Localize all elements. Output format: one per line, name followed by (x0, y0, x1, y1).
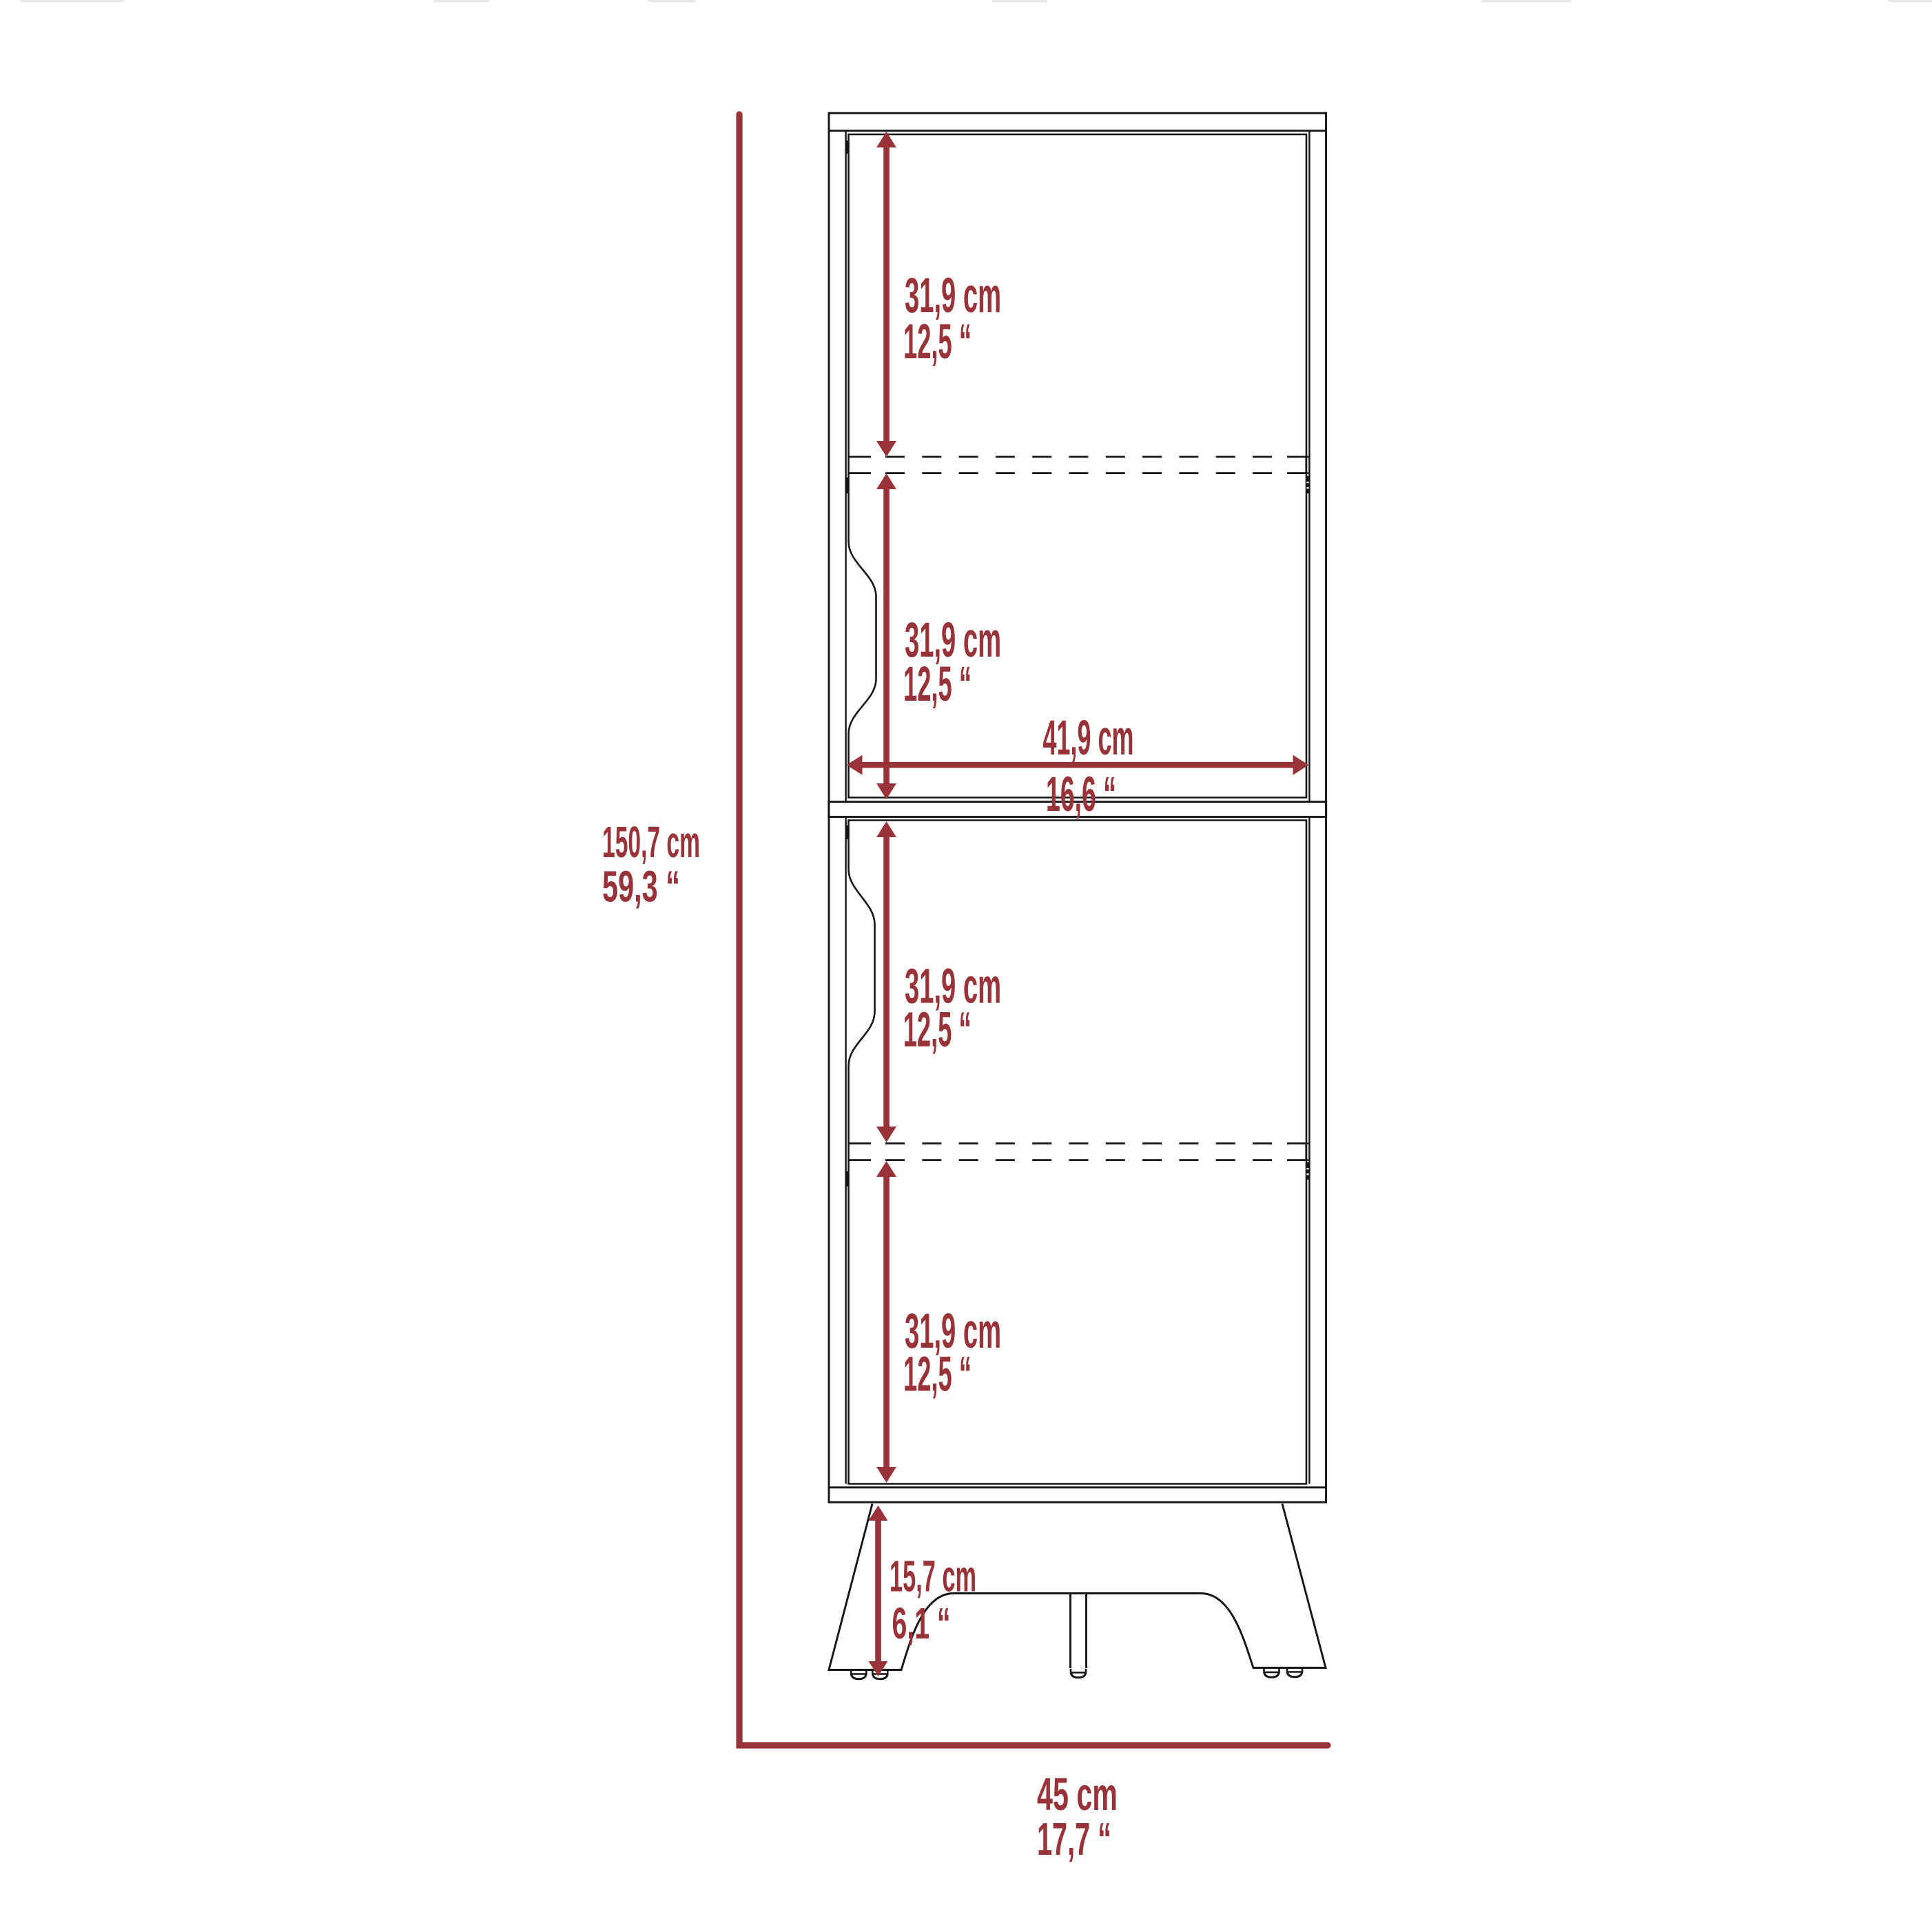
svg-text:12,5 “: 12,5 “ (903, 657, 972, 712)
svg-text:6,1 “: 6,1 “ (892, 1599, 951, 1648)
svg-text:17,7 “: 17,7 “ (1037, 1813, 1111, 1865)
svg-text:150,7 cm: 150,7 cm (602, 817, 700, 867)
svg-text:12,5 “: 12,5 “ (903, 1003, 972, 1058)
svg-text:15,7 cm: 15,7 cm (890, 1552, 976, 1601)
svg-text:41,9 cm: 41,9 cm (1043, 711, 1134, 765)
svg-text:16,6 “: 16,6 “ (1046, 768, 1116, 822)
svg-text:12,5 “: 12,5 “ (903, 315, 972, 369)
svg-text:59,3 “: 59,3 “ (602, 861, 680, 911)
svg-text:12,5 “: 12,5 “ (903, 1348, 972, 1402)
svg-text:45 cm: 45 cm (1037, 1769, 1118, 1820)
